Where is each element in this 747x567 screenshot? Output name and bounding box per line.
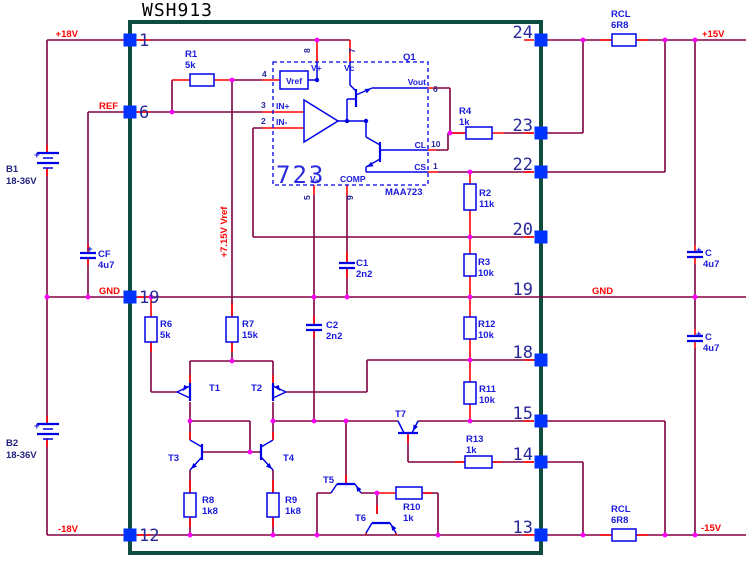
ic-pin-square-14 xyxy=(535,456,548,469)
resistor-r7 xyxy=(226,317,238,342)
net-ref: REF xyxy=(99,101,118,112)
ic-pin-square-24 xyxy=(535,34,548,47)
resistor-r12 xyxy=(464,317,476,339)
r9-ref: R9 xyxy=(285,495,297,506)
resistor-r1 xyxy=(190,74,214,86)
q1-transistor-bars xyxy=(356,89,380,162)
r12-val: 10k xyxy=(478,330,495,341)
c2-ref: C2 xyxy=(326,320,338,331)
t6-ref: T6 xyxy=(355,513,366,524)
cf-ref: CF xyxy=(98,249,111,260)
net-m15v: -15V xyxy=(701,523,722,534)
t5-ref: T5 xyxy=(323,475,335,486)
cf-plus: + xyxy=(87,244,93,255)
resistor-r3 xyxy=(464,254,476,276)
ic-cl: CL xyxy=(415,140,426,150)
ic-vc: Vc xyxy=(344,63,355,73)
resistor-r9 xyxy=(267,493,279,517)
wsh913-schematic: 161912242322201918151413WSH913+18VREFGND… xyxy=(0,0,747,567)
cf-val: 4u7 xyxy=(98,260,114,271)
t7-ref: T7 xyxy=(395,409,406,420)
icnum-9: 9 xyxy=(345,195,355,200)
ic-pin-number-1: 1 xyxy=(139,31,149,51)
rcl-bot-ref: RCL xyxy=(611,504,631,515)
r3-val: 10k xyxy=(478,268,495,279)
r4-val: 1k xyxy=(459,117,470,128)
c1-val: 2n2 xyxy=(356,269,372,280)
transistor-bars xyxy=(190,383,418,523)
ic-pin-square-22 xyxy=(535,166,548,179)
cr2-plus: + xyxy=(696,329,702,340)
icnum-7: 7 xyxy=(347,48,357,53)
rcl-top-ref: RCL xyxy=(611,9,631,20)
icnum-1: 1 xyxy=(433,161,438,171)
r8-ref: R8 xyxy=(202,495,214,506)
ic-cs: CS xyxy=(414,162,426,172)
maa723: MAA723 xyxy=(385,187,423,198)
net-p15v: +15V xyxy=(702,29,725,40)
r13-val: 1k xyxy=(466,445,477,456)
b1-ref: B1 xyxy=(6,164,19,175)
resistor-r6 xyxy=(145,317,157,342)
generated-labels: 161912242322201918151413WSH913+18VREFGND… xyxy=(6,0,725,546)
capacitor-c1 xyxy=(339,263,355,268)
capacitor-c2 xyxy=(306,325,322,330)
junction xyxy=(315,78,319,82)
ic-inm: IN- xyxy=(276,117,288,127)
r3-ref: R3 xyxy=(478,257,490,268)
b2-plus: + xyxy=(34,421,40,432)
net-vref-rail: +7.15V Vref xyxy=(219,206,230,258)
ic-pin-square-13 xyxy=(535,529,548,542)
ic-pin-number-right-23: 23 xyxy=(513,116,533,136)
r11-val: 10k xyxy=(479,395,496,406)
r10-ref: R10 xyxy=(403,502,420,513)
ic-pin-number-right-15: 15 xyxy=(513,404,533,424)
ic-pin-number-right-20: 20 xyxy=(513,220,533,240)
ic-pin-number-6: 6 xyxy=(139,103,149,123)
schematic-editor-canvas: 161912242322201918151413WSH913+18VREFGND… xyxy=(0,0,747,567)
c1-ref: C1 xyxy=(356,258,369,269)
resistor-rcl-top xyxy=(612,34,636,46)
t3-ref: T3 xyxy=(168,453,179,464)
resistor-r11 xyxy=(464,382,476,404)
cr2-ref: C xyxy=(705,332,712,343)
net-gnd-right: GND xyxy=(592,286,613,297)
icnum-4: 4 xyxy=(262,69,267,79)
r4-ref: R4 xyxy=(459,106,472,117)
r2-ref: R2 xyxy=(479,188,491,199)
cr1-ref: C xyxy=(705,248,712,259)
junction xyxy=(345,119,349,123)
ic-inp: IN+ xyxy=(276,101,290,111)
r13-ref: R13 xyxy=(466,434,483,445)
ic-comp: COMP xyxy=(340,174,366,184)
ic-pin-number-right-13: 13 xyxy=(513,518,533,538)
icnum-6: 6 xyxy=(433,84,438,94)
net-p18v: +18V xyxy=(56,29,79,40)
r7-ref: R7 xyxy=(242,319,254,330)
ic-pin-number-right-22: 22 xyxy=(513,155,533,175)
ic-pin-number-12: 12 xyxy=(139,526,159,546)
resistor-r10 xyxy=(396,487,422,499)
resistors xyxy=(145,34,636,541)
r10-val: 1k xyxy=(403,513,414,524)
ic-pin-square-18 xyxy=(535,354,548,367)
ic-pin-number-right-19: 19 xyxy=(513,280,533,300)
ic-pin-square-1 xyxy=(124,34,137,47)
ic-pin-square-15 xyxy=(535,415,548,428)
ic-pin-square-19 xyxy=(124,291,137,304)
ic-vplus: V+ xyxy=(311,63,322,73)
resistor-r4 xyxy=(466,127,492,139)
b1-val: 18-36V xyxy=(6,176,37,187)
r9-val: 1k8 xyxy=(285,506,301,517)
b2-ref: B2 xyxy=(6,438,18,449)
icnum-2: 2 xyxy=(261,116,266,126)
net-gnd-left: GND xyxy=(99,286,120,297)
ic-pin-number-right-18: 18 xyxy=(513,343,533,363)
r6-ref: R6 xyxy=(160,319,172,330)
c2-val: 2n2 xyxy=(326,331,342,342)
junction xyxy=(364,119,368,123)
ic-pin-square-6 xyxy=(124,106,137,119)
title: WSH913 xyxy=(142,0,213,21)
icnum-10: 10 xyxy=(431,139,441,149)
cr1-val: 4u7 xyxy=(703,259,719,270)
resistor-r8 xyxy=(184,493,196,517)
battery-long-plates xyxy=(37,153,59,434)
rcl-bot-val: 6R8 xyxy=(611,515,628,526)
r7-val: 15k xyxy=(242,330,259,341)
ic-pin-square-23 xyxy=(535,127,548,140)
icnum-5: 5 xyxy=(302,195,312,200)
r1-ref: R1 xyxy=(185,49,198,60)
b1-plus: + xyxy=(34,150,40,161)
t1-arrow xyxy=(183,385,189,391)
b2-val: 18-36V xyxy=(6,450,37,461)
resistor-r13 xyxy=(465,456,492,468)
ic-pin-square-20 xyxy=(535,231,548,244)
ic-vref: Vref xyxy=(286,76,302,86)
t2-arrow xyxy=(274,385,280,391)
q1-ref: Q1 xyxy=(403,52,416,63)
ic-pin-square-12 xyxy=(124,529,137,542)
t1-ref: T1 xyxy=(209,383,221,394)
r11-ref: R11 xyxy=(479,384,497,395)
t5-arrow xyxy=(356,486,361,492)
ic-pin-number-right-14: 14 xyxy=(513,445,533,465)
icnum-8: 8 xyxy=(302,48,312,53)
r2-val: 11k xyxy=(479,199,495,210)
t4-ref: T4 xyxy=(283,453,295,464)
ic-pin-number-19: 19 xyxy=(139,288,159,308)
cr1-plus: + xyxy=(696,245,702,256)
resistor-rcl-bottom xyxy=(612,529,636,541)
ic-pin-number-right-24: 24 xyxy=(513,23,533,43)
r6-val: 5k xyxy=(160,330,171,341)
ic-vout: Vout xyxy=(408,77,426,87)
r8-val: 1k8 xyxy=(202,506,218,517)
ic-outline xyxy=(130,22,541,553)
icnum-3: 3 xyxy=(261,100,266,110)
r1-val: 5k xyxy=(185,60,196,71)
ic-vminus: V- xyxy=(310,174,318,184)
resistor-r2 xyxy=(464,184,476,210)
t2-ref: T2 xyxy=(251,383,262,394)
rcl-top-val: 6R8 xyxy=(611,20,628,31)
net-m18v: -18V xyxy=(58,524,79,535)
cr2-val: 4u7 xyxy=(703,343,719,354)
r12-ref: R12 xyxy=(478,319,495,330)
opamp-triangle xyxy=(304,100,338,142)
